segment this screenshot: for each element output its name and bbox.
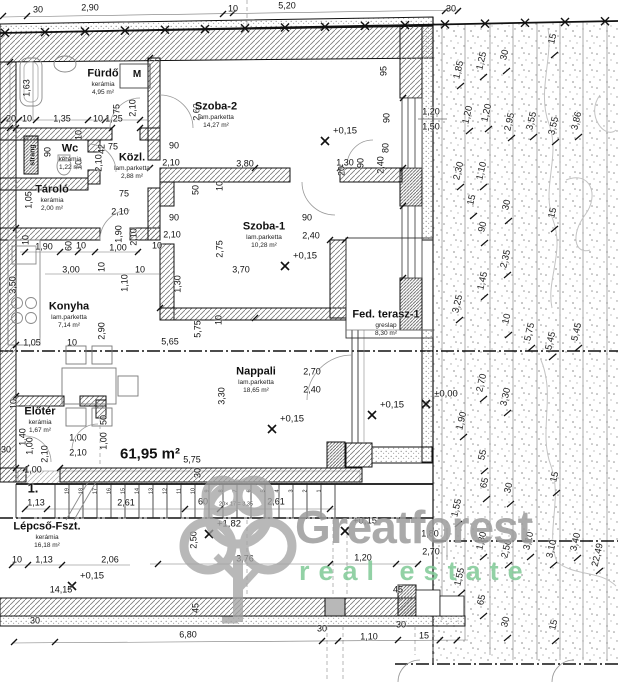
interior-walls [0, 58, 432, 482]
toilet-icon [57, 157, 71, 175]
bathtub-icon [20, 58, 42, 106]
terrain-area [433, 21, 618, 663]
washing-machine-icon [120, 64, 150, 88]
fixtures [8, 56, 150, 426]
stairs-area [16, 471, 433, 520]
exterior-walls [0, 17, 433, 663]
floor-plan-drawing: 302,90105,203020101,35101,251,63752,102,… [0, 0, 618, 684]
stair-step-lines [55, 484, 335, 518]
bottom-slab [0, 585, 465, 626]
stove-burner-icon [26, 313, 37, 324]
plan-structure [0, 0, 618, 684]
stove-burner-icon [26, 298, 37, 309]
